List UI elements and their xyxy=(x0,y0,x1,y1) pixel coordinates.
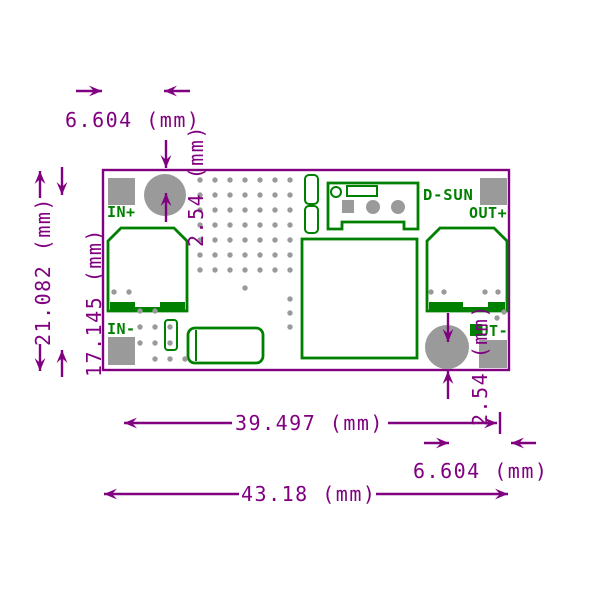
via-dot xyxy=(212,237,217,242)
via-dot xyxy=(182,356,187,361)
label-brand: D-SUN xyxy=(423,186,474,204)
via-dot xyxy=(227,252,232,257)
via-dot xyxy=(272,192,277,197)
via-dot xyxy=(242,192,247,197)
via-dot xyxy=(197,267,202,272)
dim-text-span-width: 39.497 (mm) xyxy=(235,411,384,435)
via-dot xyxy=(482,289,487,294)
via-dot xyxy=(287,222,292,227)
via-dot xyxy=(152,340,157,345)
label-in-minus: IN- xyxy=(107,320,136,338)
via-dot xyxy=(287,252,292,257)
via-dot xyxy=(428,289,433,294)
via-dot xyxy=(227,237,232,242)
via-dot xyxy=(242,237,247,242)
via-dot xyxy=(257,207,262,212)
via-dot xyxy=(287,192,292,197)
via-dot xyxy=(212,222,217,227)
via-dot xyxy=(287,310,292,315)
ic-pad-square xyxy=(342,200,354,213)
via-dot xyxy=(227,177,232,182)
silk-rect-2 xyxy=(305,206,318,233)
via-dot xyxy=(272,207,277,212)
regulator-ic xyxy=(328,183,418,229)
via-dot xyxy=(287,296,292,301)
via-dot xyxy=(441,289,446,294)
via-dot xyxy=(242,252,247,257)
dim-text-top-width: 6.604 (mm) xyxy=(65,108,200,132)
via-dot xyxy=(287,267,292,272)
input-capacitor xyxy=(108,228,187,311)
pad-bottom-left xyxy=(108,337,135,365)
via-dot xyxy=(212,267,217,272)
via-dot xyxy=(242,285,247,290)
dim-text-board-width: 43.18 (mm) xyxy=(241,482,376,506)
via-dot xyxy=(167,356,172,361)
output-capacitor xyxy=(427,228,507,311)
via-dot xyxy=(242,222,247,227)
pad-top-left xyxy=(108,178,135,205)
ic-pad-round-2 xyxy=(391,200,405,214)
via-dot xyxy=(257,192,262,197)
ic-label-box xyxy=(347,186,377,196)
via-dot xyxy=(257,222,262,227)
ic-pad-round-1 xyxy=(366,200,380,214)
via-dot xyxy=(167,324,172,329)
via-dot xyxy=(257,237,262,242)
via-dot xyxy=(272,267,277,272)
diode-outline xyxy=(188,328,263,363)
via-dot xyxy=(137,324,142,329)
ic-pin1-mark xyxy=(331,187,341,197)
via-dot xyxy=(227,222,232,227)
via-dot xyxy=(152,308,157,313)
via-dot xyxy=(152,324,157,329)
via-dot xyxy=(257,267,262,272)
diode xyxy=(188,328,263,363)
via-dot xyxy=(501,309,506,314)
via-dot xyxy=(257,252,262,257)
via-dot xyxy=(272,222,277,227)
via-dot xyxy=(212,207,217,212)
dim-text-top-offset: 2.54 (mm) xyxy=(184,125,208,247)
via-dot xyxy=(272,252,277,257)
via-dot xyxy=(167,340,172,345)
via-dot xyxy=(287,237,292,242)
via-dot xyxy=(212,177,217,182)
via-dot xyxy=(227,192,232,197)
output-capacitor-outline xyxy=(427,228,507,311)
via-dot xyxy=(287,207,292,212)
dim-text-board-height: 21.082 (mm) xyxy=(31,197,55,346)
inductor-outline xyxy=(302,239,417,358)
dim-text-inner-height: 17.145 (mm) xyxy=(82,228,106,377)
via-dot xyxy=(287,177,292,182)
via-dot xyxy=(126,289,131,294)
via-dot xyxy=(257,177,262,182)
via-dot xyxy=(152,356,157,361)
via-dot xyxy=(212,192,217,197)
via-dot xyxy=(495,289,500,294)
via-dot xyxy=(137,308,142,313)
via-dot xyxy=(137,340,142,345)
via-dot xyxy=(111,289,116,294)
input-capacitor-outline xyxy=(108,228,187,311)
via-dot xyxy=(242,267,247,272)
label-out-plus: OUT+ xyxy=(469,204,507,222)
via-dot xyxy=(287,324,292,329)
via-dot xyxy=(197,252,202,257)
input-capacitor-notch xyxy=(135,302,160,307)
dim-text-bottom-offset: 2.54 (mm) xyxy=(468,304,492,426)
dim-text-bottom-width: 6.604 (mm) xyxy=(413,459,548,483)
via-dot xyxy=(272,177,277,182)
pcb-dimension-drawing: IN+ IN- OUT+ OUT- D-SUN 6.604 (mm) 2.54 … xyxy=(0,0,600,600)
via-dot xyxy=(494,315,499,320)
drawing-canvas: IN+ IN- OUT+ OUT- D-SUN 6.604 (mm) 2.54 … xyxy=(0,0,600,600)
via-dot xyxy=(212,252,217,257)
via-dot xyxy=(242,207,247,212)
via-dot xyxy=(227,207,232,212)
label-in-plus: IN+ xyxy=(107,203,136,221)
silk-rect-1 xyxy=(305,175,318,204)
via-dot xyxy=(227,267,232,272)
via-dot xyxy=(272,237,277,242)
via-dot xyxy=(242,177,247,182)
pad-top-right xyxy=(480,178,507,205)
